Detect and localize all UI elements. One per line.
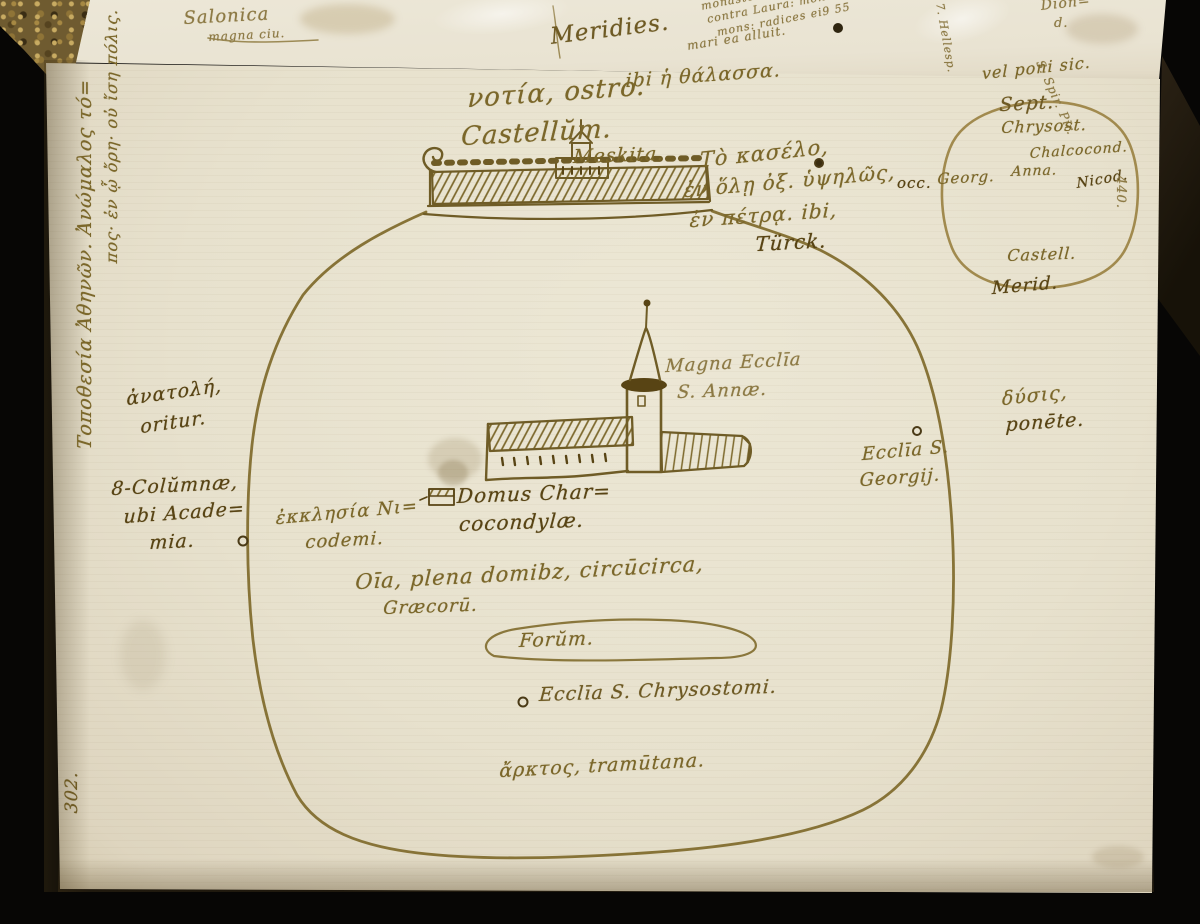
label-domus-chalcocondylae-line2: cocondylæ.	[458, 508, 585, 536]
label-ecclesia-nicodemi-line2: codemi.	[305, 528, 385, 553]
label-magna-ecclesia-line2: S. Annæ.	[677, 379, 768, 403]
label-forum: Forŭm.	[518, 627, 594, 652]
label-omnia-plena-line2: Græcorū.	[383, 595, 479, 619]
manuscript-photo: Salonica magna ciu. Meridies. monasteria…	[0, 0, 1200, 924]
fragment-corner2: d.	[1054, 16, 1068, 31]
folio-number-302: 302.	[62, 770, 82, 814]
label-georg: Georg.	[937, 167, 995, 188]
label-tuerck: Türck.	[755, 228, 828, 256]
label-meskita: Meskita.	[572, 143, 665, 168]
label-sept: Sept.	[999, 91, 1055, 116]
house-of-chalcocondyles	[420, 489, 454, 505]
label-columnae-line3: mia.	[149, 530, 196, 554]
folio-number-440: 440.	[1113, 176, 1128, 209]
label-castell: Castell.	[1007, 244, 1078, 265]
title-topothesia-line1: Τοποθεσία Ἀθηνῶν. Ἀνώμαλος τό=	[74, 78, 96, 450]
label-chrysost: Chrysost.	[1001, 115, 1088, 137]
label-anna: Anna.	[1011, 162, 1058, 180]
label-occ: occ.	[897, 174, 932, 192]
title-topothesia-line2: πος· ἐν ᾧ ὄρη· οὐ ἴση πόλις.	[102, 7, 121, 264]
fragment-salonica: Salonica	[183, 4, 270, 29]
